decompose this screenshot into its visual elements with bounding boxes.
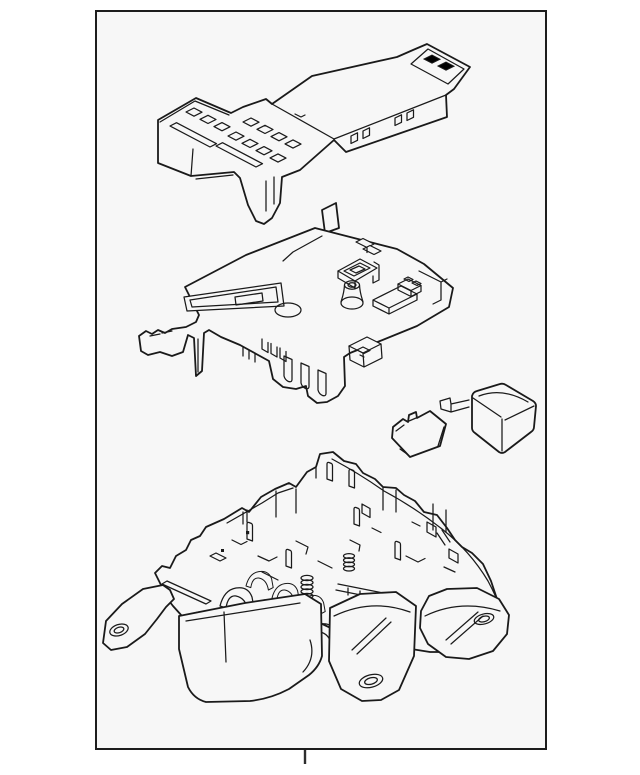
mounting-leg-right: [420, 588, 509, 659]
parts-diagram-canvas: [0, 0, 640, 775]
exploded-parts-illustration: [0, 0, 640, 775]
